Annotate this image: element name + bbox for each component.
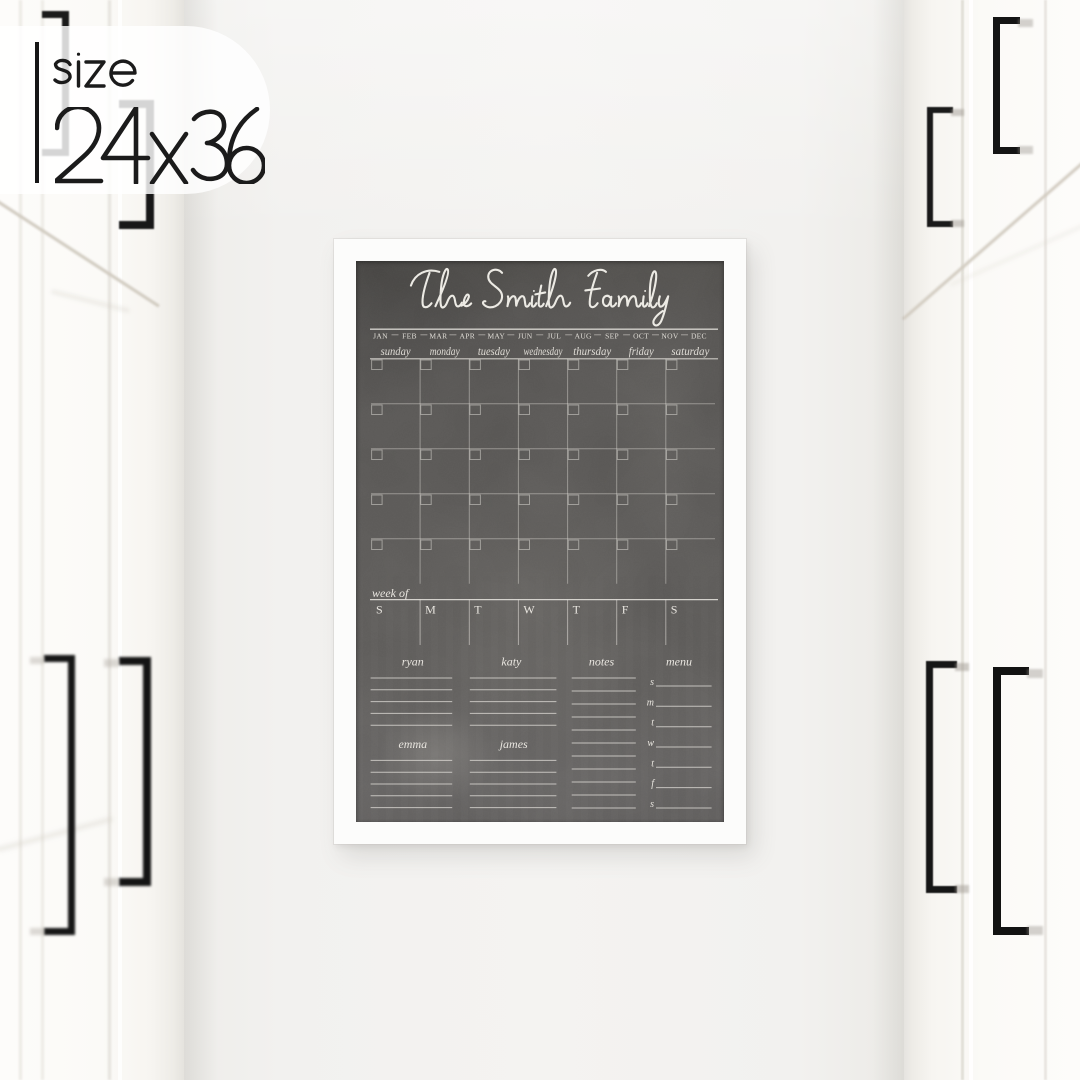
svg-text:notes: notes [589,655,615,669]
svg-text:week of: week of [372,586,410,600]
svg-text:monday: monday [430,346,461,358]
svg-text:T: T [474,603,482,617]
svg-text:s: s [650,677,654,688]
svg-text:T: T [573,603,581,617]
svg-text:james: james [498,737,528,751]
svg-text:NOV: NOV [661,332,678,341]
svg-text:MAR: MAR [429,332,447,341]
svg-text:emma: emma [398,737,427,751]
svg-text:W: W [523,603,535,617]
svg-text:DEC: DEC [691,332,707,341]
svg-text:AUG: AUG [575,332,592,341]
svg-text:FEB: FEB [402,332,417,341]
svg-text:wednesday: wednesday [524,346,564,358]
svg-text:t: t [651,758,654,769]
svg-text:thursday: thursday [573,346,612,358]
svg-text:w: w [647,738,654,749]
svg-text:ryan: ryan [402,655,424,669]
svg-text:sunday: sunday [381,346,412,358]
svg-text:m: m [647,697,654,708]
svg-text:JUN: JUN [518,332,533,341]
svg-text:friday: friday [629,346,655,358]
svg-text:s: s [650,799,654,810]
svg-text:katy: katy [501,655,522,669]
svg-text:OCT: OCT [633,332,649,341]
svg-text:JAN: JAN [373,332,388,341]
svg-text:t: t [651,718,654,729]
svg-text:saturday: saturday [671,346,710,358]
svg-text:MAY: MAY [487,332,505,341]
svg-text:S: S [376,603,383,617]
svg-text:JUL: JUL [547,332,561,341]
svg-text:APR: APR [460,332,476,341]
svg-text:M: M [425,603,436,617]
svg-text:F: F [622,603,629,617]
svg-text:S: S [671,603,678,617]
svg-text:tuesday: tuesday [478,346,511,358]
svg-text:SEP: SEP [605,332,619,341]
svg-text:menu: menu [666,655,692,669]
